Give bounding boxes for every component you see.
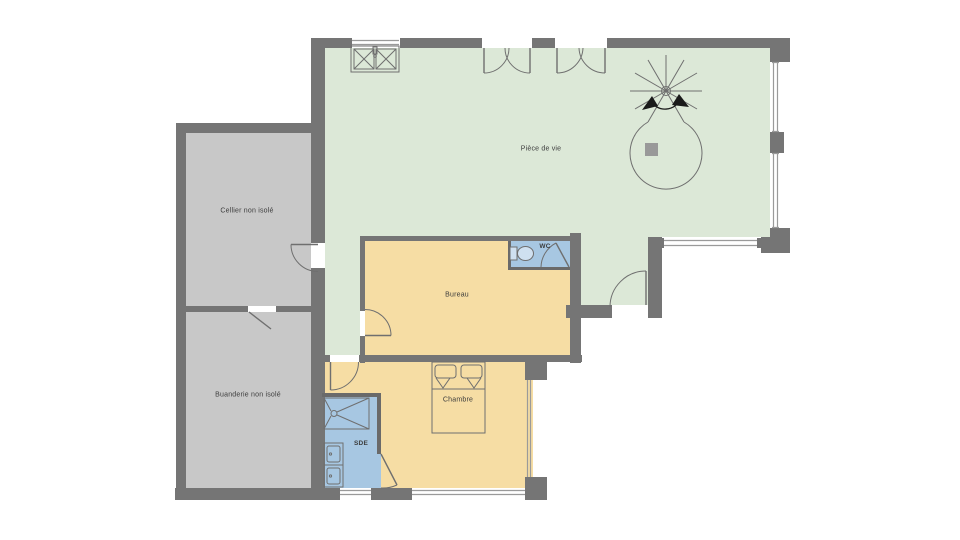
- structural-column: [645, 143, 658, 156]
- room-label-bureau: Bureau: [445, 292, 469, 299]
- kitchen-window: [352, 41, 399, 45]
- room-fill-piece-de-vie-strip: [325, 48, 360, 355]
- living-room-bay-window-bottom: [660, 238, 761, 248]
- room-label-piece-de-vie: Pièce de vie: [521, 146, 562, 153]
- room-fill-hall: [581, 237, 648, 305]
- room-fill-buanderie: [186, 312, 311, 488]
- chambre-window-bottom: [412, 491, 525, 495]
- room-label-wc: WC: [539, 244, 550, 251]
- room-fill-piece-de-vie-main: [325, 48, 770, 237]
- room-label-chambre: Chambre: [443, 397, 473, 404]
- room-label-cellier: Cellier non isolé: [220, 208, 273, 215]
- room-label-sde: SDE: [354, 441, 368, 448]
- living-room-window-right-lower: [772, 153, 779, 228]
- room-label-buanderie: Buanderie non isolé: [215, 392, 281, 399]
- toilet: [510, 247, 534, 261]
- floor-plan: Cellier non isolé Buanderie non isolé Pi…: [0, 0, 960, 540]
- room-fills: [186, 48, 770, 488]
- floor-plan-drawing: [0, 0, 960, 540]
- sde-window-bottom: [340, 491, 371, 495]
- living-room-window-right-upper: [772, 62, 779, 132]
- room-fill-cellier: [186, 133, 311, 306]
